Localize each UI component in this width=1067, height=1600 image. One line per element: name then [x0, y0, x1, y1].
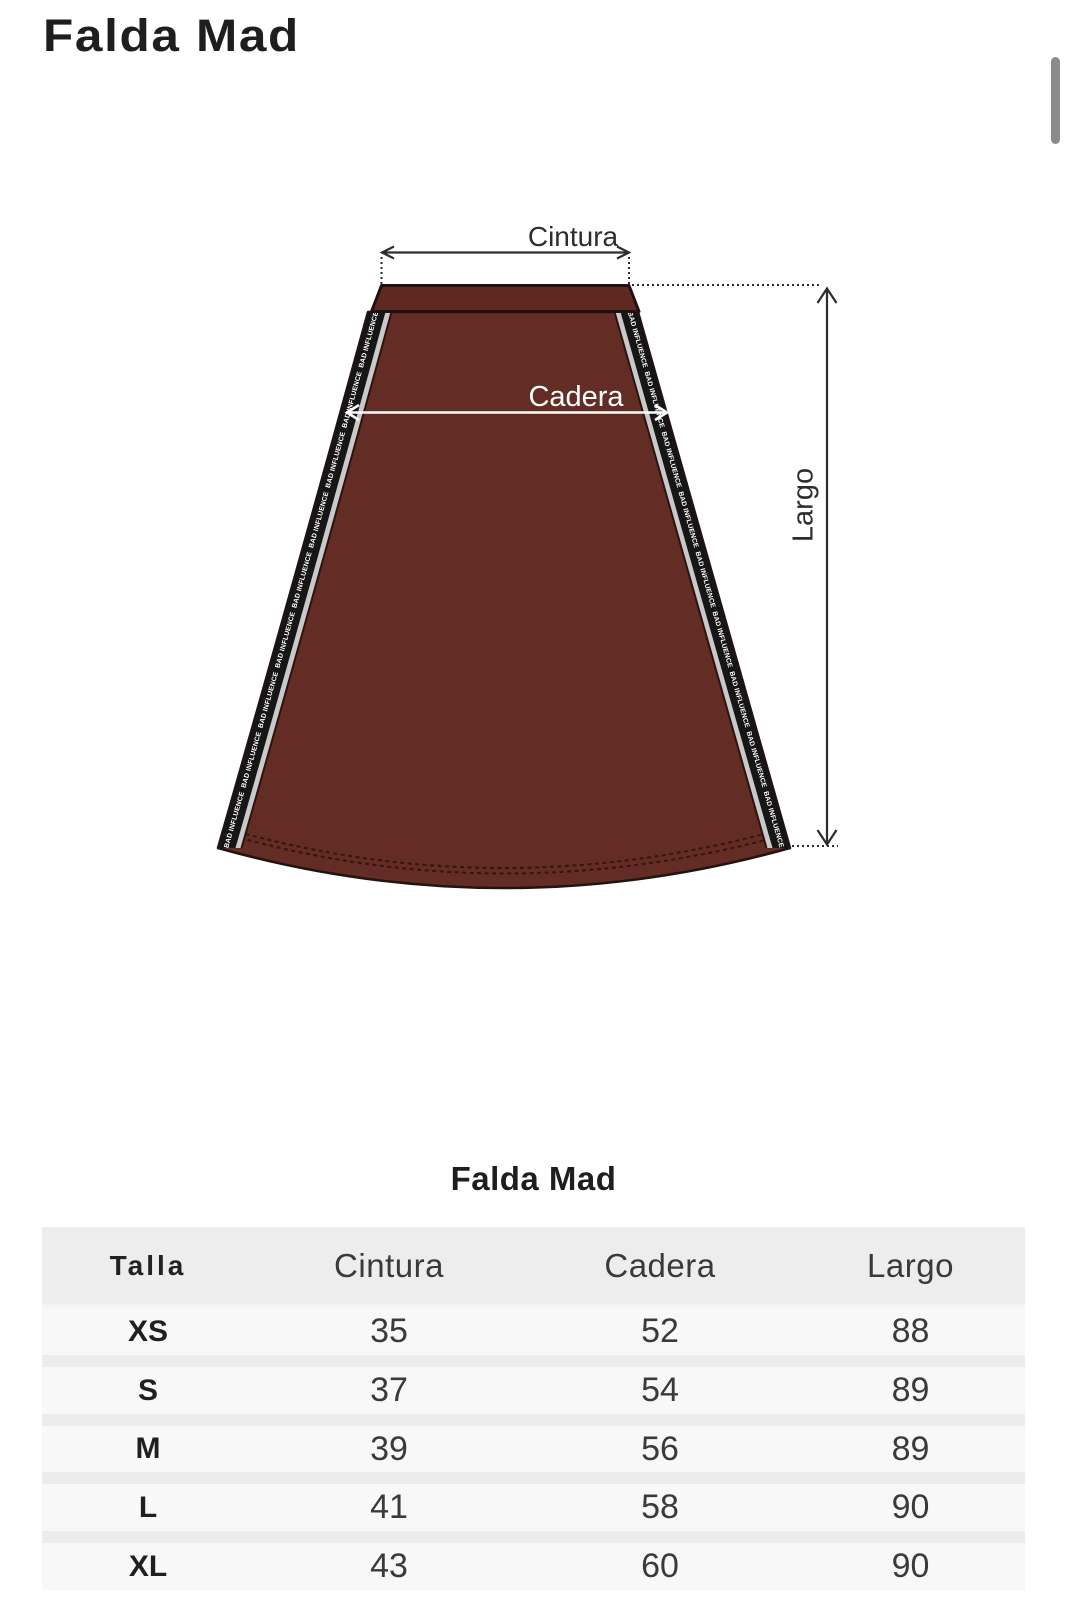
- svg-text:Cintura: Cintura: [528, 221, 619, 252]
- svg-text:Largo: Largo: [788, 468, 820, 542]
- svg-text:Cadera: Cadera: [528, 381, 624, 413]
